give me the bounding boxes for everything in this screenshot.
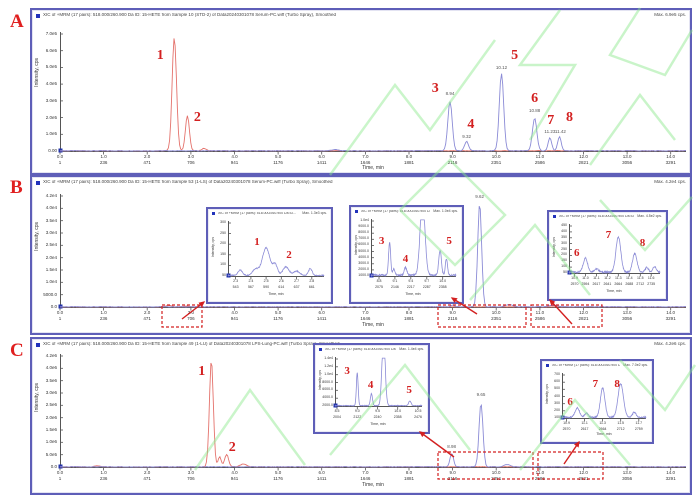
inset-plot-c2: 70060050040030020010010.9257011.1261711.… (562, 373, 646, 419)
peak-number-label: 4 (467, 118, 474, 132)
x-axis-tick-time: 2.0 (144, 311, 150, 316)
x-axis-tick-scan: 543 (233, 286, 239, 290)
x-axis-tick-time: 8.5 (335, 410, 340, 414)
window-icon (212, 212, 215, 215)
y-axis-tick-label: 5000.0 (33, 293, 57, 298)
inset-plot-c1: 1.4e41.2e41.0e48000.06000.04000.02000.08… (335, 357, 422, 407)
peak-number-label: 7 (606, 230, 612, 241)
x-axis-tick-time: 14.0 (666, 311, 675, 316)
x-axis-tick-time: 7.0 (362, 155, 368, 160)
peak-number-label: 8 (566, 111, 573, 125)
y-axis-tick-label: 4.2e6 (33, 354, 57, 359)
x-axis-tick-time: 3.0 (188, 471, 194, 476)
x-axis-tick-time: 6.0 (319, 311, 325, 316)
x-axis-tick-scan: 941 (231, 477, 239, 482)
x-axis-tick-scan: 1176 (273, 317, 283, 322)
x-axis-tick-time: 5.0 (275, 471, 281, 476)
y-axis-tick-label: 300 (551, 242, 567, 246)
window-titlebar: XIC of +MRM (17 pairs): 518.000/260.900 … (33, 178, 689, 187)
plot-canvas (569, 224, 660, 278)
y-axis-tick-label: 100 (544, 416, 560, 420)
x-axis-tick-time: 11.6 (648, 277, 655, 281)
y-axis-tick-label: 150 (551, 259, 567, 263)
x-axis-tick-scan: 2688 (625, 283, 633, 287)
chromatogram-plot-a: 7.0e56.0e55.0e54.0e53.0e52.0e51.0e50.000… (60, 32, 686, 152)
y-axis-tick-label: 4000.0 (317, 396, 333, 400)
x-axis-tick-scan: 1881 (404, 477, 414, 482)
peak-number-label: 1 (254, 237, 260, 248)
x-axis-tick-scan: 471 (143, 161, 151, 166)
x-axis-tick-scan: 2712 (617, 428, 625, 432)
peak-number-label: 8 (614, 379, 620, 390)
x-axis-tick-time: 6.0 (319, 155, 325, 160)
x-axis-tick-scan: 2821 (578, 317, 588, 322)
peak-rt-label: 8.94 (446, 92, 455, 97)
x-axis-title: Time, min (362, 483, 384, 488)
max-intensity-label: Max. 4.2e4 cps. (654, 180, 686, 185)
peak-number-label: 6 (567, 397, 573, 408)
peak-number-label: 6 (574, 248, 580, 259)
x-axis-tick-time: 12.0 (579, 311, 588, 316)
x-axis-tick-time: 3.0 (188, 155, 194, 160)
x-axis-tick-time: 11.4 (626, 277, 633, 281)
x-axis-tick-time: 2.0 (144, 155, 150, 160)
x-axis-tick-time: 14.0 (666, 155, 675, 160)
peak-number-label: 6 (531, 92, 538, 106)
y-axis-tick-label: 6000.0 (317, 388, 333, 392)
x-axis-tick-scan: 941 (231, 161, 239, 166)
x-axis-tick-time: 10.9 (571, 277, 578, 281)
x-axis-tick-scan: 2594 (581, 283, 589, 287)
x-axis-tick-scan: 637 (294, 286, 300, 290)
x-axis-tick-scan: 2617 (581, 428, 589, 432)
x-axis-title: Time, min (606, 290, 621, 294)
y-axis-tick-label: 4.2e4 (33, 194, 57, 199)
x-axis-tick-scan: 1881 (404, 317, 414, 322)
x-axis-tick-scan: 941 (231, 317, 239, 322)
y-axis-tick-label: 2000.0 (353, 268, 369, 272)
peak-number-label: 3 (379, 236, 385, 247)
max-intensity-label: Max. 1.0e4 cps. (433, 210, 458, 214)
y-axis-tick-label: 4.0e4 (33, 206, 57, 211)
x-axis-tick-scan: 1411 (317, 477, 327, 482)
x-axis-tick-time: 11.3 (599, 422, 606, 426)
x-axis-tick-time: 10.0 (394, 410, 401, 414)
x-axis-title: Time, min (268, 293, 283, 297)
y-axis-tick-label: 0.00 (33, 149, 57, 154)
y-axis-tick-label: 350 (551, 236, 567, 240)
y-axis-tick-label: 1.0e6 (33, 440, 57, 445)
x-axis-tick-scan: 1646 (360, 477, 370, 482)
panel-label-b: B (10, 178, 23, 197)
peak-rt-label: 10.12 (496, 66, 507, 71)
y-axis-tick-label: 2.5e4 (33, 243, 57, 248)
x-axis-tick-scan: 2759 (635, 428, 643, 432)
plot-canvas (228, 221, 324, 281)
x-axis-tick-scan: 236 (100, 317, 108, 322)
window-title: XIC of +MRM (17 pairs): 518.000/260.900 … (559, 215, 634, 219)
x-axis-tick-scan: 3291 (666, 317, 676, 322)
x-axis-tick-scan: 2146 (391, 286, 399, 290)
y-axis-tick-label: 150 (210, 253, 226, 257)
x-axis-tick-scan: 2358 (394, 416, 402, 420)
peak-number-label: 7 (593, 379, 599, 390)
peak-number-label: 3 (432, 82, 439, 96)
zoom-inset-b3: XIC of +MRM (17 pairs): 518.000/260.900 … (547, 210, 668, 301)
y-axis-tick-label: 4.0e6 (33, 366, 57, 371)
zoom-inset-c1: XIC of +MRM (17 pairs): 518.000/260.900 … (313, 343, 430, 434)
y-axis-tick-label: 50 (551, 271, 567, 275)
y-axis-tick-label: 2.0e6 (33, 416, 57, 421)
y-axis-tick-label: 450 (551, 224, 567, 228)
y-axis-tick-label: 2000.0 (317, 404, 333, 408)
peak-number-label: 5 (511, 49, 518, 63)
x-axis-tick-time: 8.0 (406, 471, 412, 476)
window-titlebar: XIC of +MRM (17 pairs): 518.000/260.900 … (316, 346, 427, 353)
y-axis-tick-label: 1.5e6 (33, 428, 57, 433)
x-axis-tick-scan: 1 (59, 161, 62, 166)
max-intensity-label: Max. 4.5e2 cps. (637, 215, 662, 219)
y-axis-tick-label: 1.5e4 (33, 268, 57, 273)
x-axis-tick-scan: 661 (309, 286, 315, 290)
x-axis-tick-scan: 614 (278, 286, 284, 290)
x-axis-tick-time: 3.0 (188, 311, 194, 316)
x-axis-tick-time: 9.0 (449, 471, 455, 476)
x-axis-tick-scan: 1881 (404, 161, 414, 166)
blue-trace (228, 247, 324, 276)
x-axis-tick-scan: 590 (263, 286, 269, 290)
x-axis-tick-time: 1.0 (100, 471, 106, 476)
inset-plot-b2: 1.0e49000.08000.07000.06000.05000.04000.… (371, 219, 456, 277)
x-axis-tick-time: 10.0 (492, 471, 501, 476)
max-intensity-label: Max. 6.9e5 cps. (654, 13, 686, 18)
x-axis-tick-time: 9.1 (392, 280, 397, 284)
plot-canvas (371, 219, 456, 281)
x-axis-tick-scan: 2712 (636, 283, 644, 287)
y-axis-tick-label: 1000.0 (353, 274, 369, 278)
x-axis-tick-scan: 2821 (578, 477, 588, 482)
x-axis-tick-time: 9.0 (355, 410, 360, 414)
x-axis-tick-time: 9.7 (424, 280, 429, 284)
inset-plot-b3: 4504003503002502001501005010.9257011.025… (569, 224, 660, 274)
window-icon (319, 348, 322, 351)
x-axis-tick-time: 11.2 (604, 277, 611, 281)
x-axis-tick-time: 4.0 (231, 471, 237, 476)
x-axis-tick-time: 2.4 (248, 280, 253, 284)
y-axis-tick-label: 9000.0 (353, 225, 369, 229)
x-axis-tick-time: 4.0 (231, 155, 237, 160)
x-axis-tick-scan: 236 (100, 477, 108, 482)
x-axis-tick-scan: 706 (187, 317, 195, 322)
y-axis-tick-label: 4000.0 (353, 256, 369, 260)
peak-rt-label: 11.42 (555, 130, 566, 135)
panel-label-c: C (10, 341, 24, 360)
x-axis-tick-scan: 2075 (375, 286, 383, 290)
peak-number-label: 4 (368, 380, 374, 391)
x-axis-tick-scan: 2351 (491, 317, 501, 322)
window-icon (355, 210, 358, 213)
y-axis-tick-label: 500 (544, 387, 560, 391)
x-axis-title: Time, min (596, 433, 611, 437)
x-axis-tick-scan: 2351 (491, 161, 501, 166)
peak-number-label: 5 (446, 236, 452, 247)
x-axis-tick-time: 12.0 (579, 471, 588, 476)
x-axis-tick-time: 10.5 (415, 410, 422, 414)
zoom-inset-b2: XIC of +MRM (17 pairs): 518.000/260.900 … (349, 205, 464, 304)
window-titlebar: XIC of +MRM (17 pairs): 518.000/260.900 … (550, 213, 665, 220)
window-title: XIC of +MRM (17 pairs): 518.000/260.900 … (325, 348, 396, 352)
x-axis-tick-time: 0.0 (57, 311, 63, 316)
x-axis-tick-time: 11.7 (636, 422, 643, 426)
y-axis-tick-label: 8000.0 (353, 231, 369, 235)
x-axis-tick-time: 10.0 (492, 155, 501, 160)
x-axis-tick-scan: 2664 (599, 428, 607, 432)
x-axis-tick-scan: 2116 (448, 161, 458, 166)
y-axis-tick-label: 600 (544, 380, 560, 384)
x-axis-tick-scan: 471 (143, 317, 151, 322)
y-axis-tick-label: 2.0e4 (33, 256, 57, 261)
x-axis-tick-time: 2.8 (309, 280, 314, 284)
x-axis-tick-scan: 2116 (448, 477, 458, 482)
window-icon (36, 14, 40, 18)
x-axis-tick-time: 11.0 (582, 277, 589, 281)
x-axis-tick-scan: 1 (59, 477, 62, 482)
x-axis-tick-scan: 2358 (439, 286, 447, 290)
x-axis-tick-scan: 2570 (571, 283, 579, 287)
peak-number-label: 5 (406, 385, 412, 396)
y-axis-tick-label: 4.0e5 (33, 82, 57, 87)
x-axis-title: Time, min (370, 423, 385, 427)
x-axis-tick-time: 11.5 (637, 277, 644, 281)
y-axis-tick-label: 100 (551, 265, 567, 269)
x-axis-tick-time: 2.0 (144, 471, 150, 476)
x-axis-tick-scan: 3291 (666, 161, 676, 166)
x-axis-tick-scan: 2735 (647, 283, 655, 287)
x-axis-tick-time: 7.0 (362, 311, 368, 316)
y-axis-tick-label: 1.4e4 (317, 357, 333, 361)
x-axis-tick-time: 2.6 (279, 280, 284, 284)
peak-rt-label: 9.62 (475, 195, 484, 200)
x-axis-tick-time: 4.0 (231, 311, 237, 316)
x-axis-tick-scan: 471 (143, 477, 151, 482)
x-axis-tick-time: 5.0 (275, 155, 281, 160)
peak-number-label: 3 (344, 366, 350, 377)
x-axis-tick-time: 7.0 (362, 471, 368, 476)
x-axis-tick-scan: 3291 (666, 477, 676, 482)
window-title: XIC of +MRM (17 pairs): 518.000/260.900 … (43, 180, 651, 185)
peak-rt-label: 11.23 (544, 130, 555, 135)
chromatogram-window-b: XIC of +MRM (17 pairs): 518.000/260.900 … (30, 175, 692, 335)
x-axis-tick-time: 10.0 (439, 280, 446, 284)
figure-canvas: A B C XIC of +MRM (17 pairs): 518.000/26… (0, 0, 700, 496)
x-axis-tick-time: 0.0 (57, 471, 63, 476)
window-icon (546, 364, 549, 367)
x-axis-title: Time, min (362, 323, 384, 328)
x-axis-tick-time: 2.3 (233, 280, 238, 284)
x-axis-tick-time: 2.5 (264, 280, 269, 284)
x-axis-tick-time: 11.0 (536, 471, 544, 476)
y-axis-tick-label: 700 (544, 373, 560, 377)
y-axis-tick-label: 300 (544, 402, 560, 406)
x-axis-tick-time: 13.0 (623, 155, 632, 160)
x-axis-tick-scan: 2351 (491, 477, 501, 482)
x-axis-tick-scan: 2641 (603, 283, 611, 287)
x-axis-tick-scan: 2116 (448, 317, 458, 322)
zoom-inset-c2: XIC of +MRM (17 pairs): 518.000/260.900 … (540, 359, 654, 444)
x-axis-tick-time: 12.0 (579, 155, 588, 160)
x-axis-tick-scan: 706 (187, 161, 195, 166)
y-axis-tick-label: 1.0e4 (33, 280, 57, 285)
window-title: XIC of +MRM (17 pairs): 518.000/260.900 … (218, 212, 299, 216)
max-intensity-label: Max. 7.0e2 cps. (623, 364, 648, 368)
peak-rt-label: 8.98 (447, 445, 456, 450)
max-intensity-label: Max. 1.3e3 cps. (302, 212, 327, 216)
x-axis-tick-time: 6.0 (319, 471, 325, 476)
y-axis-tick-label: 3.0e5 (33, 99, 57, 104)
y-axis-tick-label: 3.5e4 (33, 219, 57, 224)
x-axis-tick-time: 8.8 (377, 280, 382, 284)
y-axis-tick-label: 1.2e4 (317, 365, 333, 369)
max-intensity-label: Max. 4.2e6 cps. (654, 342, 686, 347)
x-axis-tick-scan: 2240 (374, 416, 382, 420)
x-axis-tick-time: 13.0 (623, 471, 632, 476)
x-axis-tick-scan: 2586 (535, 317, 545, 322)
window-titlebar: XIC of +MRM (17 pairs): 518.000/260.900 … (33, 11, 689, 20)
x-axis-tick-time: 9.0 (449, 155, 455, 160)
blue-trace (562, 384, 646, 418)
x-axis-tick-scan: 1176 (273, 477, 283, 482)
peak-rt-label: 9.32 (462, 135, 471, 140)
y-axis-tick-label: 2.0e5 (33, 116, 57, 121)
y-axis-tick-label: 1.0e5 (33, 132, 57, 137)
y-axis-tick-label: 3.0e6 (33, 391, 57, 396)
plot-canvas (60, 32, 686, 156)
x-axis-tick-scan: 2586 (535, 477, 545, 482)
y-axis-tick-label: 6.0e5 (33, 49, 57, 54)
x-axis-tick-scan: 1411 (317, 161, 327, 166)
chromatogram-window-a: XIC of +MRM (17 pairs): 518.000/260.900 … (30, 8, 692, 175)
x-axis-tick-scan: 1 (59, 317, 62, 322)
peak-number-label: 7 (547, 114, 554, 128)
x-axis-tick-time: 10.0 (492, 311, 501, 316)
x-axis-tick-scan: 1176 (273, 161, 283, 166)
x-axis-tick-time: 9.0 (449, 311, 455, 316)
x-axis-tick-scan: 2664 (614, 283, 622, 287)
y-axis-tick-label: 7.0e5 (33, 32, 57, 37)
x-axis-tick-time: 1.0 (100, 155, 106, 160)
y-axis-tick-label: 7000.0 (353, 237, 369, 241)
x-axis-tick-scan: 236 (100, 161, 108, 166)
y-axis-tick-label: 5.0e5 (33, 453, 57, 458)
y-axis-tick-label: 3000.0 (353, 262, 369, 266)
y-axis-tick-label: 250 (551, 248, 567, 252)
y-axis-tick-label: 100 (210, 263, 226, 267)
plot-canvas (562, 373, 646, 423)
chromatogram-window-c: XIC of +MRM (17 pairs): 518.000/260.900 … (30, 337, 692, 495)
window-icon (36, 343, 40, 347)
x-axis-tick-scan: 1646 (360, 317, 370, 322)
x-axis-tick-time: 9.5 (375, 410, 380, 414)
x-axis-tick-time: 10.9 (563, 422, 570, 426)
x-axis-tick-time: 11.1 (593, 277, 600, 281)
x-axis-tick-scan: 3056 (622, 317, 632, 322)
x-axis-tick-time: 11.1 (581, 422, 588, 426)
x-axis-tick-time: 0.0 (57, 155, 63, 160)
peak-rt-label: 10.88 (529, 109, 540, 114)
y-axis-tick-label: 3.5e6 (33, 379, 57, 384)
y-axis-tick-label: 250 (210, 232, 226, 236)
blue-trace (569, 237, 660, 273)
peak-number-label: 2 (194, 111, 201, 125)
x-axis-tick-time: 8.0 (406, 311, 412, 316)
x-axis-tick-scan: 2586 (535, 161, 545, 166)
peak-number-label: 8 (640, 238, 646, 249)
y-axis-tick-label: 400 (544, 395, 560, 399)
x-axis-tick-time: 11.0 (536, 311, 544, 316)
x-axis-tick-scan: 2122 (353, 416, 361, 420)
x-axis-tick-time: 11.0 (536, 155, 544, 160)
window-title: XIC of +MRM (17 pairs): 518.000/260.900 … (361, 210, 430, 214)
x-axis-tick-scan: 2821 (578, 161, 588, 166)
y-axis-tick-label: 5.0e5 (33, 65, 57, 70)
window-title: XIC of +MRM (17 pairs): 518.000/260.900 … (43, 13, 651, 18)
x-axis-tick-scan: 1411 (317, 317, 327, 322)
x-axis-tick-time: 9.4 (408, 280, 413, 284)
window-titlebar: XIC of +MRM (17 pairs): 518.000/260.900 … (543, 362, 651, 369)
blue-trace (60, 74, 686, 151)
red-trace (60, 38, 686, 151)
y-axis-tick-label: 5000.0 (353, 250, 369, 254)
y-axis-tick-label: 300 (210, 221, 226, 225)
peak-number-label: 2 (229, 441, 236, 455)
zoom-inset-b1: XIC of +MRM (17 pairs): 518.000/260.900 … (206, 207, 333, 304)
max-intensity-label: Max. 1.4e4 cps. (399, 348, 424, 352)
x-axis-title: Time, min (405, 293, 420, 297)
y-axis-tick-label: 8000.0 (317, 381, 333, 385)
y-axis-tick-label: 6000.0 (353, 243, 369, 247)
x-axis-tick-scan: 2476 (414, 416, 422, 420)
x-axis-tick-scan: 567 (248, 286, 254, 290)
x-axis-tick-time: 14.0 (666, 471, 675, 476)
peak-number-label: 1 (157, 49, 164, 63)
y-axis-tick-label: 0.0 (33, 305, 57, 310)
window-titlebar: XIC of +MRM (17 pairs): 518.000/260.900 … (352, 208, 461, 215)
peak-number-label: 1 (198, 365, 205, 379)
x-axis-tick-scan: 2217 (407, 286, 415, 290)
y-axis-tick-label: 2.5e6 (33, 403, 57, 408)
x-axis-tick-time: 2.7 (294, 280, 299, 284)
blue-trace (371, 220, 456, 276)
x-axis-tick-time: 8.0 (406, 155, 412, 160)
x-axis-tick-scan: 3056 (622, 477, 632, 482)
x-axis-tick-scan: 706 (187, 477, 195, 482)
window-icon (36, 181, 40, 185)
x-axis-title: Time, min (362, 166, 384, 171)
y-axis-tick-label: 400 (551, 230, 567, 234)
y-axis-tick-label: 50 (210, 274, 226, 278)
inset-plot-b1: 300250200150100502.35432.45672.55902.661… (228, 221, 324, 277)
y-axis-tick-label: 0.0 (33, 465, 57, 470)
x-axis-tick-scan: 2570 (563, 428, 571, 432)
window-title: XIC of +MRM (17 pairs): 518.000/260.900 … (552, 364, 620, 368)
y-axis-tick-label: 200 (551, 253, 567, 257)
x-axis-tick-scan: 2617 (592, 283, 600, 287)
y-axis-tick-label: 1.0e4 (353, 219, 369, 223)
peak-number-label: 4 (403, 254, 409, 265)
x-axis-tick-time: 11.3 (615, 277, 622, 281)
x-axis-tick-scan: 3056 (622, 161, 632, 166)
x-axis-tick-scan: 2004 (333, 416, 341, 420)
